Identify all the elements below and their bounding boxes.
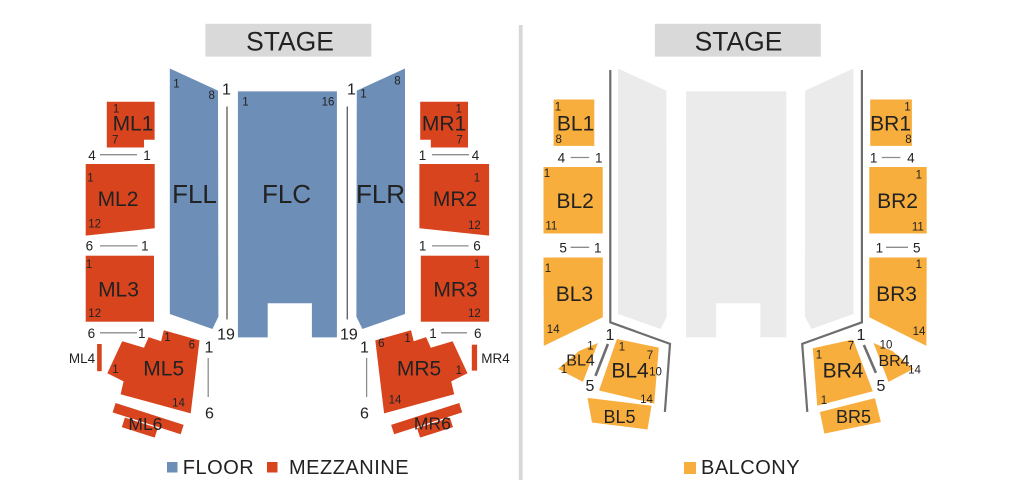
svg-text:12: 12 <box>468 308 481 320</box>
svg-text:1: 1 <box>419 148 427 163</box>
svg-text:BL4: BL4 <box>566 353 595 370</box>
svg-text:1: 1 <box>419 239 427 254</box>
svg-text:1: 1 <box>555 101 561 113</box>
svg-text:1: 1 <box>347 82 356 99</box>
svg-text:1: 1 <box>455 103 461 115</box>
svg-text:1: 1 <box>360 89 366 101</box>
svg-text:1: 1 <box>205 340 214 357</box>
svg-text:MR1: MR1 <box>422 113 466 136</box>
svg-text:ML3: ML3 <box>98 279 139 302</box>
svg-text:1: 1 <box>429 326 437 341</box>
svg-text:6: 6 <box>378 338 384 350</box>
svg-text:1: 1 <box>242 97 248 109</box>
svg-text:FLR: FLR <box>356 179 405 209</box>
svg-text:4: 4 <box>472 148 480 163</box>
svg-text:6: 6 <box>86 239 94 254</box>
svg-text:1: 1 <box>164 332 170 344</box>
svg-text:16: 16 <box>322 97 335 109</box>
svg-text:MEZZANINE: MEZZANINE <box>289 457 409 479</box>
svg-text:1: 1 <box>138 326 146 341</box>
svg-text:1: 1 <box>816 350 822 362</box>
svg-text:8: 8 <box>905 134 911 146</box>
svg-text:19: 19 <box>340 327 358 344</box>
svg-text:10: 10 <box>880 340 893 352</box>
svg-text:6: 6 <box>474 326 482 341</box>
svg-text:1: 1 <box>561 364 567 376</box>
svg-text:1: 1 <box>474 259 480 271</box>
svg-text:14: 14 <box>908 365 921 377</box>
svg-text:5: 5 <box>586 378 595 395</box>
svg-text:1: 1 <box>360 340 369 357</box>
svg-text:1: 1 <box>222 82 231 99</box>
svg-text:8: 8 <box>555 134 561 146</box>
svg-text:BL3: BL3 <box>556 283 593 306</box>
svg-text:MR5: MR5 <box>397 358 441 381</box>
svg-text:FLC: FLC <box>262 179 311 209</box>
svg-text:4: 4 <box>88 148 96 163</box>
svg-text:7: 7 <box>112 134 118 146</box>
svg-text:ML4: ML4 <box>69 351 96 366</box>
svg-text:14: 14 <box>913 326 926 338</box>
svg-text:STAGE: STAGE <box>695 27 783 57</box>
svg-text:FLL: FLL <box>172 179 217 209</box>
svg-text:1: 1 <box>143 148 151 163</box>
svg-text:1: 1 <box>904 101 910 113</box>
svg-text:BR5: BR5 <box>836 407 871 427</box>
svg-text:12: 12 <box>88 219 101 231</box>
svg-text:14: 14 <box>389 395 402 407</box>
svg-text:1: 1 <box>404 333 410 345</box>
svg-text:12: 12 <box>468 220 481 232</box>
svg-text:ML6: ML6 <box>128 414 162 434</box>
svg-text:6: 6 <box>205 406 214 423</box>
svg-text:1: 1 <box>916 259 922 271</box>
svg-text:ML2: ML2 <box>98 188 139 211</box>
svg-text:1: 1 <box>595 151 603 166</box>
svg-text:1: 1 <box>86 259 92 271</box>
svg-text:BL2: BL2 <box>557 190 594 213</box>
svg-text:1: 1 <box>544 168 550 180</box>
svg-text:5: 5 <box>877 378 886 395</box>
svg-text:STAGE: STAGE <box>246 27 334 57</box>
svg-text:6: 6 <box>88 326 96 341</box>
svg-text:6: 6 <box>360 405 369 422</box>
svg-text:1: 1 <box>594 240 602 255</box>
svg-text:1: 1 <box>876 240 884 255</box>
svg-text:MR2: MR2 <box>433 188 477 211</box>
svg-text:4: 4 <box>907 151 915 166</box>
svg-text:MR4: MR4 <box>481 351 510 366</box>
svg-text:11: 11 <box>912 221 924 233</box>
svg-text:BR2: BR2 <box>877 190 918 213</box>
svg-text:5: 5 <box>559 240 567 255</box>
svg-text:1: 1 <box>113 103 119 115</box>
svg-text:11: 11 <box>545 220 557 232</box>
svg-text:BL1: BL1 <box>557 112 594 135</box>
svg-text:14: 14 <box>547 324 560 336</box>
svg-text:1: 1 <box>456 365 462 377</box>
svg-text:14: 14 <box>640 394 653 406</box>
svg-text:1: 1 <box>545 263 551 275</box>
svg-text:1: 1 <box>141 239 149 254</box>
svg-text:12: 12 <box>88 308 101 320</box>
svg-text:14: 14 <box>172 397 185 409</box>
svg-text:BR3: BR3 <box>876 283 917 306</box>
svg-text:6: 6 <box>473 239 481 254</box>
svg-text:1: 1 <box>619 342 625 354</box>
svg-text:1: 1 <box>916 169 922 181</box>
svg-text:5: 5 <box>913 240 921 255</box>
svg-text:1: 1 <box>821 395 827 407</box>
svg-text:1: 1 <box>857 327 866 344</box>
svg-text:1: 1 <box>870 151 878 166</box>
svg-text:7: 7 <box>848 341 854 353</box>
svg-text:7: 7 <box>647 350 653 362</box>
svg-text:1: 1 <box>587 341 593 353</box>
svg-text:MR3: MR3 <box>433 279 477 302</box>
svg-text:8: 8 <box>394 76 400 88</box>
svg-text:MR6: MR6 <box>414 414 451 434</box>
svg-text:BR4: BR4 <box>878 353 909 370</box>
svg-text:FLOOR: FLOOR <box>183 457 254 479</box>
svg-text:19: 19 <box>217 327 235 344</box>
svg-text:7: 7 <box>456 134 462 146</box>
svg-text:1: 1 <box>87 173 93 185</box>
svg-text:BALCONY: BALCONY <box>701 457 800 479</box>
svg-text:ML5: ML5 <box>143 358 184 381</box>
svg-text:1: 1 <box>606 327 615 344</box>
svg-text:8: 8 <box>208 90 214 102</box>
svg-text:BR1: BR1 <box>870 112 911 135</box>
svg-text:BR4: BR4 <box>823 360 864 383</box>
svg-text:1: 1 <box>173 79 179 91</box>
svg-text:6: 6 <box>189 340 195 352</box>
svg-text:BL5: BL5 <box>603 407 635 427</box>
svg-text:4: 4 <box>558 151 566 166</box>
svg-text:1: 1 <box>474 173 480 185</box>
svg-text:1: 1 <box>112 364 118 376</box>
svg-text:10: 10 <box>649 367 662 379</box>
svg-text:ML1: ML1 <box>113 113 154 136</box>
svg-text:BL4: BL4 <box>611 360 649 383</box>
